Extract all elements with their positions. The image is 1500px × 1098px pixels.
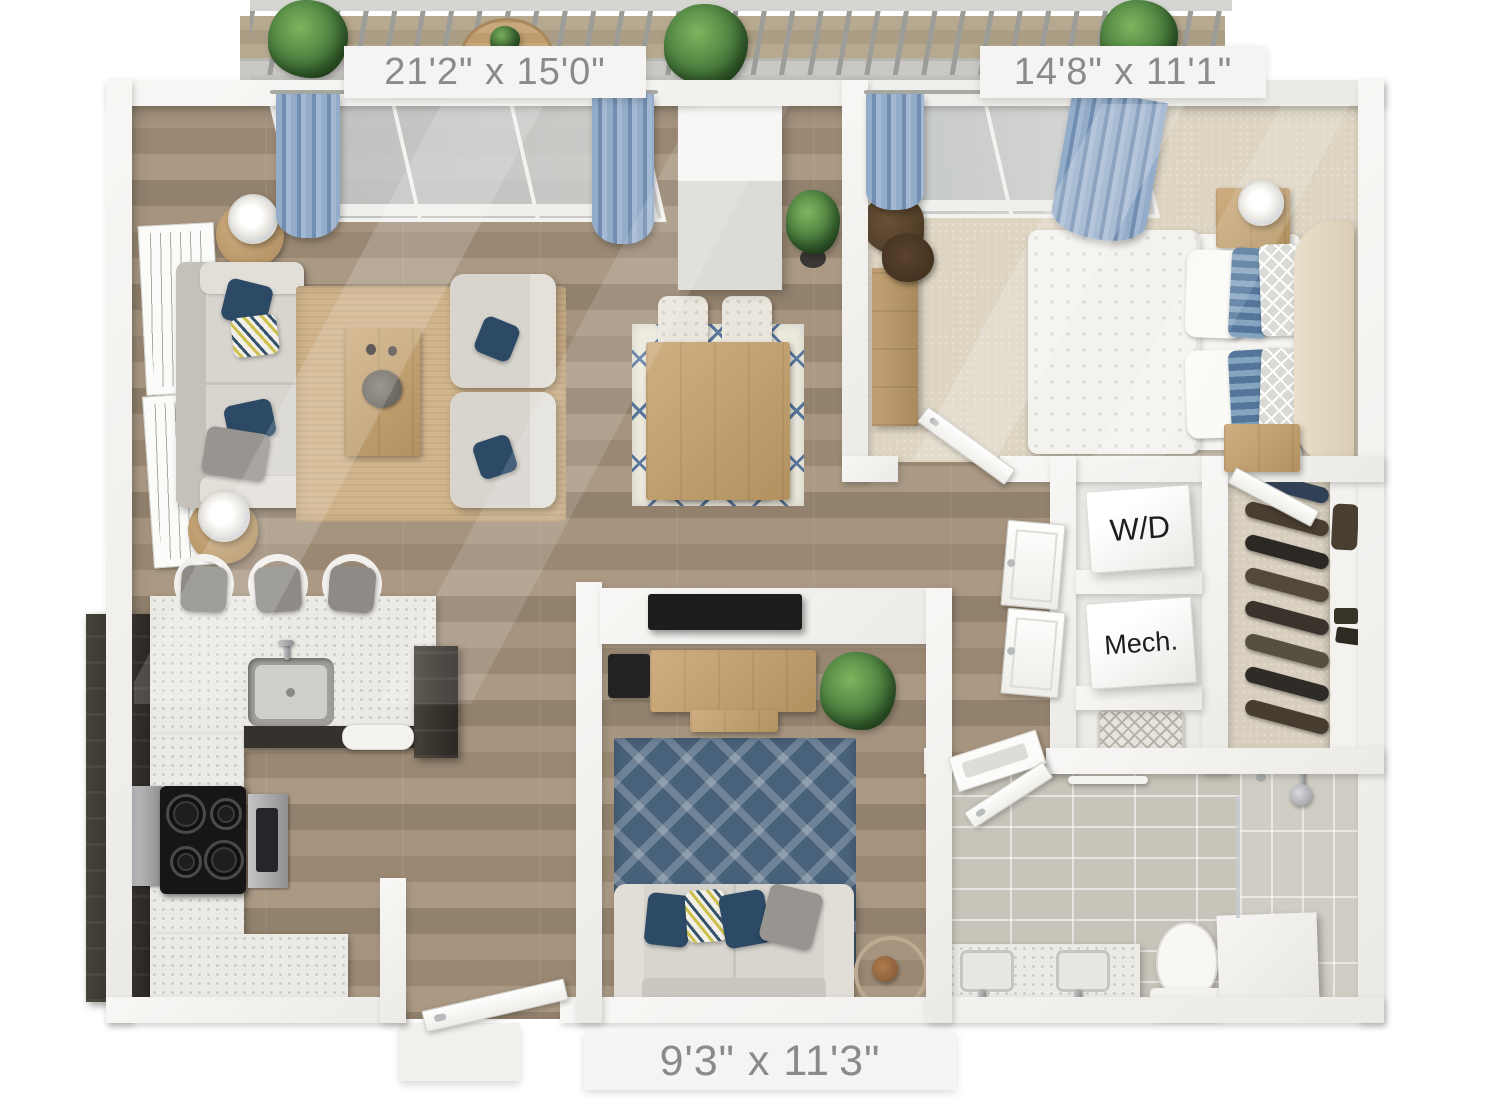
wall-bedroom-bottom-left [842, 456, 898, 482]
sofa-back [176, 262, 206, 508]
floor-plan: W/D Mech. [0, 0, 1500, 1098]
wall-oven [248, 794, 288, 888]
decor-tray [362, 370, 402, 408]
dresser-decor [882, 234, 934, 282]
den-dimension-label: 9'3" x 11'3" [584, 1032, 956, 1090]
dresser [872, 268, 918, 426]
bed-duvet [1028, 230, 1200, 454]
wall-den-right [926, 588, 952, 1023]
cooktop [160, 786, 246, 894]
stool-seat [253, 564, 302, 613]
wall-bottom-left [106, 997, 406, 1023]
nightstand-lamp [1238, 180, 1284, 226]
stool-seat [327, 564, 377, 614]
table-lamp [198, 490, 250, 542]
dining-table [646, 342, 790, 500]
entry-step [400, 1023, 520, 1081]
wall-right [1358, 80, 1384, 1023]
nightstand [1224, 424, 1300, 472]
loveseat-arm [824, 884, 854, 1010]
door-handle [975, 807, 987, 817]
balcony-plant-left [268, 0, 348, 78]
wall-bottom-right [560, 997, 1384, 1023]
vanity-sink [1056, 950, 1110, 992]
bar-stool [248, 554, 308, 616]
burner [204, 840, 244, 880]
stool-seat [180, 565, 228, 613]
hall-closet-door [1000, 520, 1065, 611]
bedroom-dimension-label: 14'8" x 11'1" [980, 46, 1266, 98]
balcony-plant-middle [664, 4, 748, 86]
shower-head [1290, 784, 1312, 806]
living-room-curtain-right [592, 94, 654, 244]
wall-living-bedroom [842, 80, 868, 482]
wall-bathroom-top [1046, 748, 1384, 774]
wall-closet-divider [1076, 686, 1202, 710]
decor-vase [388, 346, 397, 356]
door-panel [1010, 617, 1058, 690]
woven-basket [1098, 710, 1184, 752]
tv [648, 594, 802, 630]
hall-closet-door [1000, 608, 1065, 699]
shower-glass [1236, 796, 1240, 918]
floor-lamp-shade [872, 956, 898, 982]
towel-bar [1068, 776, 1148, 784]
wall-den-left [576, 582, 602, 1023]
washer-dryer-unit: W/D [1085, 484, 1194, 573]
closet-bag [1331, 503, 1359, 550]
bar-stool [174, 554, 234, 616]
sofa-cushion-seam [206, 382, 304, 385]
potted-plant [786, 190, 840, 254]
burner [210, 798, 242, 830]
kitchen-faucet [284, 644, 290, 660]
closet-shoes [1334, 608, 1358, 624]
door-handle [434, 1013, 447, 1023]
burner [166, 794, 206, 834]
wall-entry-stub [380, 878, 406, 1023]
kitchen-sink [248, 658, 334, 726]
table-lamp [228, 194, 278, 244]
dishwasher [342, 724, 414, 750]
speaker [608, 654, 650, 698]
living-room-curtain-left [276, 94, 340, 238]
wall-closet-divider [1076, 570, 1202, 594]
kitchen-faucet-spout [278, 640, 294, 646]
decor-vase [366, 344, 376, 355]
kitchen-cabinet-end [414, 646, 458, 758]
coffee-table [344, 328, 420, 456]
headboard [1294, 220, 1354, 464]
door-panel [1010, 529, 1058, 602]
wall-closets-walkin [1202, 456, 1228, 774]
wall-left [106, 80, 132, 1023]
kitchen-counter-bottom-run [150, 934, 348, 1002]
loveseat-arm [614, 884, 644, 1010]
armchair-back [530, 392, 556, 508]
door-handle [928, 416, 940, 427]
throw-pillow-gray [201, 425, 272, 482]
bedroom-curtain-left [866, 94, 924, 210]
burner [170, 846, 202, 878]
vanity-sink [960, 950, 1014, 992]
media-console [650, 650, 816, 712]
bar-stool [322, 554, 382, 616]
armchair-back [530, 274, 556, 388]
den-plant [820, 652, 896, 730]
shower-partition-wall [1216, 912, 1319, 1007]
mechanical-unit: Mech. [1085, 596, 1197, 689]
column [678, 102, 782, 290]
living-room-window-sill [292, 204, 640, 216]
oven-window [256, 808, 278, 872]
media-console-shelf [690, 710, 778, 732]
throw-pillow-chevron [230, 313, 281, 358]
living-room-dimension-label: 21'2" x 15'0" [344, 46, 646, 98]
sink-drain [286, 688, 295, 697]
